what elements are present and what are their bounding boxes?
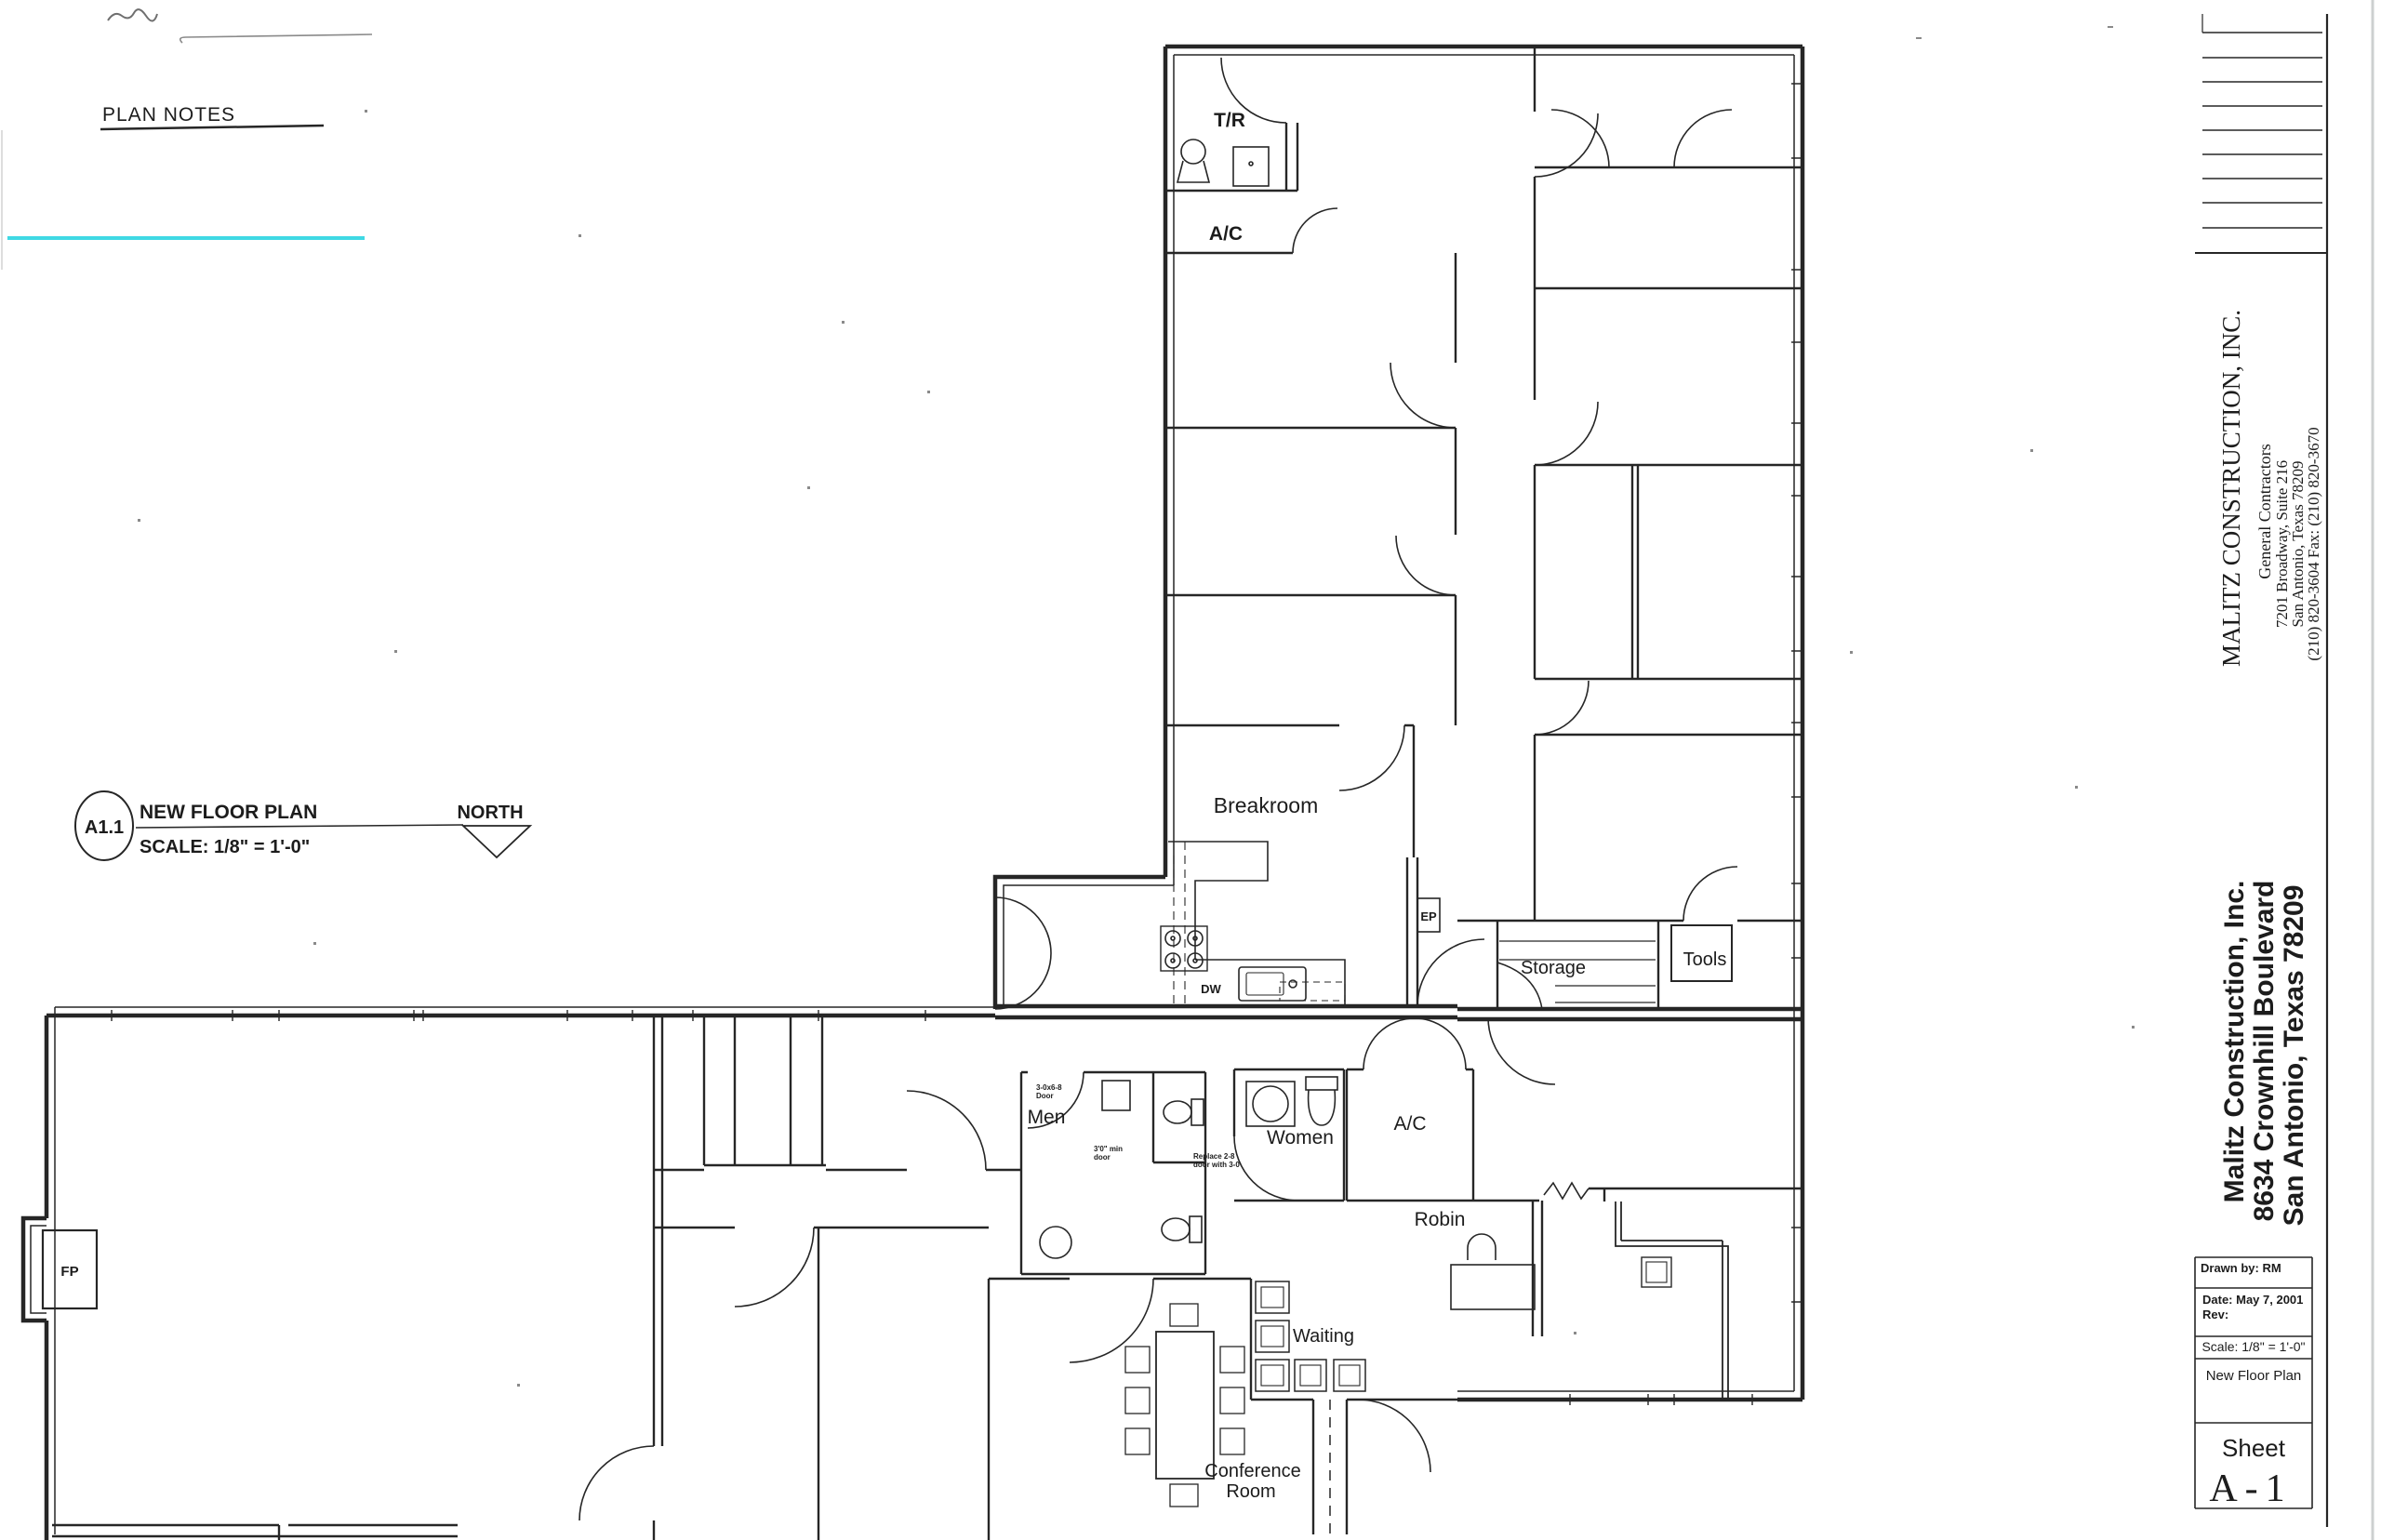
scan-artifacts [2,0,2373,1540]
room-label-ac-upper: A/C [1209,223,1243,245]
north-arrow: NORTH [457,803,530,857]
interior-walls-upper-wing [1165,46,1802,1009]
robin-desk [1451,1265,1535,1309]
drawn-by-value: Drawn by: RM [2201,1261,2281,1275]
company-subtitle: General Contractors [2255,444,2274,578]
robin-chair [1468,1234,1496,1260]
kitchen-sink [1239,967,1306,1001]
project-line3: San Antonio, Texas 78209 [2279,885,2309,1227]
company-name: MALITZ CONSTRUCTION, INC. [2217,310,2245,667]
womens-sink-counter [1246,1082,1295,1126]
room-label-robin: Robin [1415,1209,1466,1230]
sheet-word: Sheet [2222,1434,2286,1462]
room-label-fp: FP [60,1264,78,1280]
women-door-note-1: Replace 2-8 [1193,1152,1235,1161]
mens-toilet-2 [1162,1218,1190,1241]
womens-toilet [1309,1090,1336,1125]
company-block: MALITZ CONSTRUCTION, INC. General Contra… [2217,310,2322,667]
tr-toilet [1181,139,1205,164]
project-line1: Malitz Construction, Inc. [2219,881,2250,1203]
exterior-wall-inner-lines [31,55,1794,1534]
room-label-conference-1: Conference [1204,1461,1300,1481]
tr-sink [1233,147,1269,186]
sheet-number: A-1 [2209,1467,2292,1510]
plan-notes-heading: PLAN NOTES [100,9,372,129]
drawing-title-callout: A1.1 NEW FLOOR PLAN SCALE: 1/8" = 1'-0" [75,791,463,860]
window-jambs [112,84,1802,1405]
room-label-storage: Storage [1521,958,1586,978]
robin-furniture [1451,1234,1535,1309]
men-door-note-2: Door [1036,1092,1054,1100]
project-line2: 8634 Crownhill Boulevard [2249,881,2280,1222]
men-door-note-1: 3-0x6-8 [1036,1083,1062,1092]
room-label-dw: DW [1201,982,1221,996]
sheet-title: New Floor Plan [2206,1368,2302,1384]
room-label-women: Women [1267,1127,1334,1148]
revision-rows [2195,14,2327,253]
women-door-note-2: door with 3-0 [1193,1161,1240,1169]
womens-fixtures [1246,1077,1337,1126]
womens-sink [1253,1086,1288,1122]
callout-scale: SCALE: 1/8" = 1'-0" [140,837,310,857]
reception-counter [1616,1201,1728,1400]
men-clear-note-1: 3'0" min [1094,1145,1123,1153]
cyan-highlight-line [7,236,365,240]
tiny-annotations: 3-0x6-8 Door 3'0" min door Replace 2-8 d… [1036,1083,1240,1169]
tr-fixtures [1177,139,1269,186]
kitchen-fixtures [1161,842,1345,1006]
men-clear-note-2: door [1094,1153,1111,1162]
room-label-men: Men [1028,1107,1066,1128]
room-label-tr: T/R [1214,110,1245,131]
date-value: Date: May 7, 2001 [2202,1293,2303,1307]
wall-break-zigzag [1544,1183,1589,1199]
room-label-tools: Tools [1683,949,1727,970]
room-label-waiting: Waiting [1293,1326,1354,1347]
plan-notes-title: PLAN NOTES [102,104,235,126]
mens-sink [1040,1227,1071,1258]
room-label-conference-2: Room [1226,1481,1275,1502]
stray-mark [180,34,372,43]
callout-title: NEW FLOOR PLAN [140,802,317,823]
title-block: MALITZ CONSTRUCTION, INC. General Contra… [2195,14,2327,1527]
project-block: Malitz Construction, Inc. 8634 Crownhill… [2219,881,2309,1227]
scale-value: Scale: 1/8" = 1'-0" [2201,1339,2305,1354]
north-label: NORTH [457,803,523,823]
door-arcs [579,58,1737,1520]
mens-toilet-1 [1164,1101,1191,1123]
conference-table [1156,1332,1214,1479]
room-label-breakroom: Breakroom [1214,793,1318,817]
pencil-squiggle [108,9,157,20]
callout-ref: A1.1 [85,817,124,838]
rev-value: Rev: [2202,1308,2228,1321]
room-label-ep: EP [1420,909,1437,923]
floor-plan-sheet: PLAN NOTES A1.1 NEW FLOOR PLAN SCALE: 1/… [0,0,2381,1540]
mens-urinal [1102,1081,1130,1110]
room-label-ac-lower: A/C [1393,1113,1426,1135]
company-phone: (210) 820-3604 Fax: (210) 820-3670 [2305,427,2322,660]
